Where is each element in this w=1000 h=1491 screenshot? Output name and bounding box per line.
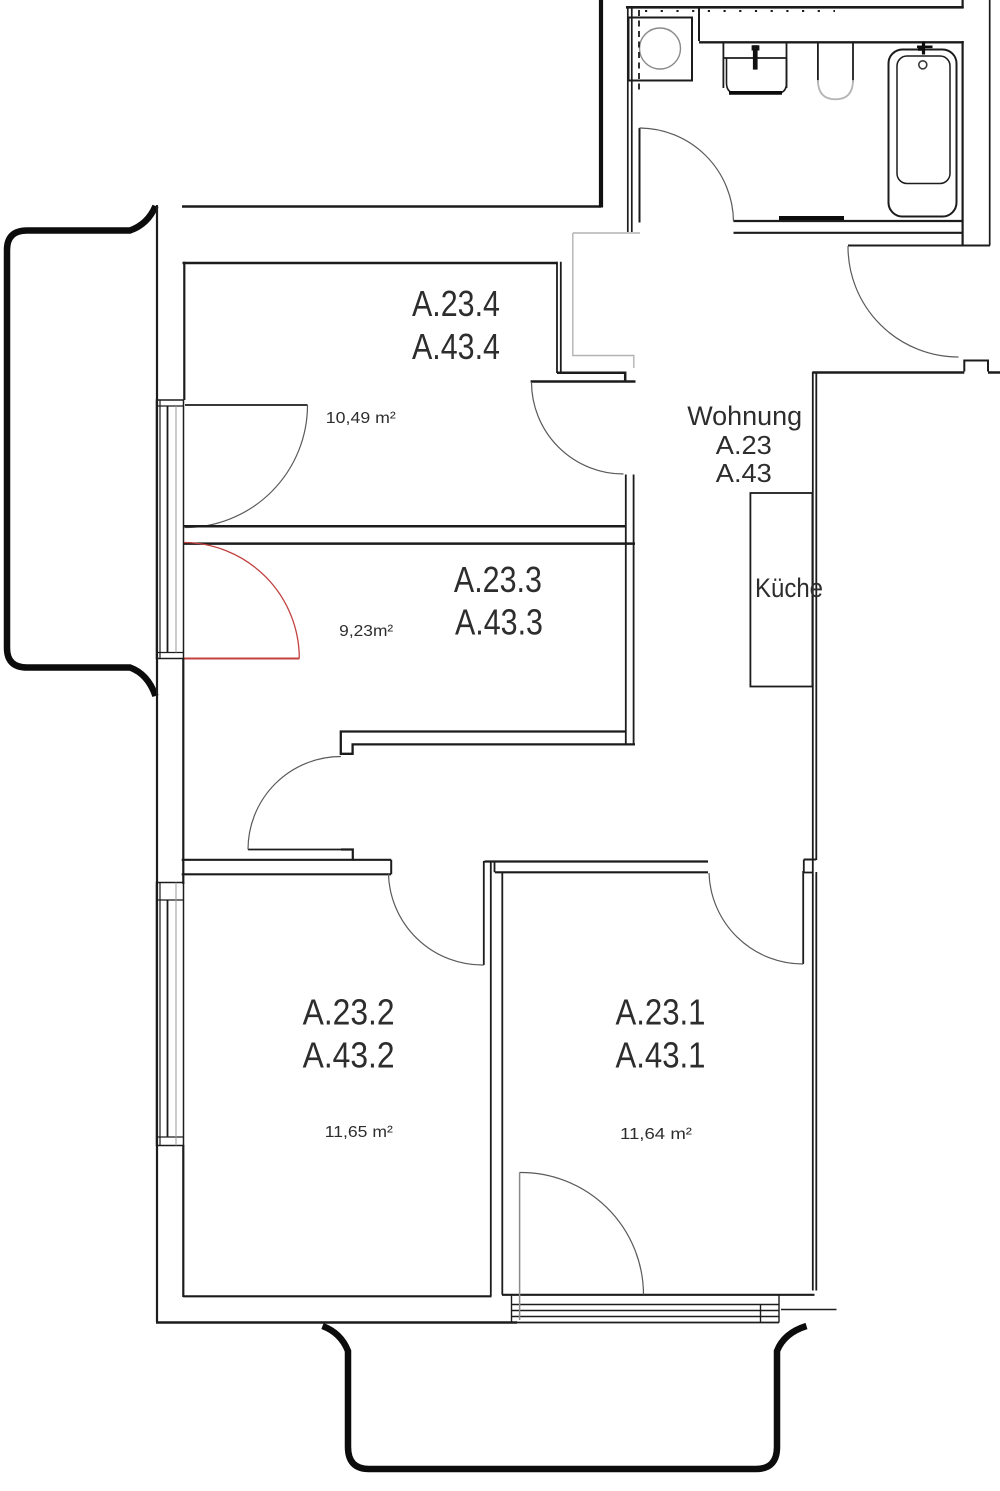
svg-text:Küche: Küche: [755, 573, 823, 603]
svg-text:A.43: A.43: [716, 458, 772, 488]
svg-text:A.43.2: A.43.2: [303, 1034, 395, 1075]
svg-text:A.43.4: A.43.4: [412, 326, 500, 367]
svg-text:A.23.4: A.23.4: [412, 283, 500, 324]
svg-text:9,23m²: 9,23m²: [339, 623, 394, 640]
svg-text:A.43.1: A.43.1: [616, 1034, 706, 1075]
svg-text:Wohnung: Wohnung: [687, 401, 802, 431]
svg-text:11,65 m²: 11,65 m²: [325, 1124, 394, 1141]
svg-text:A.23: A.23: [716, 430, 772, 460]
svg-text:A.23.3: A.23.3: [454, 559, 542, 600]
svg-text:10,49 m²: 10,49 m²: [326, 410, 397, 427]
svg-text:A.23.2: A.23.2: [303, 992, 395, 1033]
svg-text:A.23.1: A.23.1: [616, 992, 706, 1033]
svg-text:A.43.3: A.43.3: [455, 602, 543, 643]
svg-text:11,64 m²: 11,64 m²: [620, 1126, 693, 1143]
